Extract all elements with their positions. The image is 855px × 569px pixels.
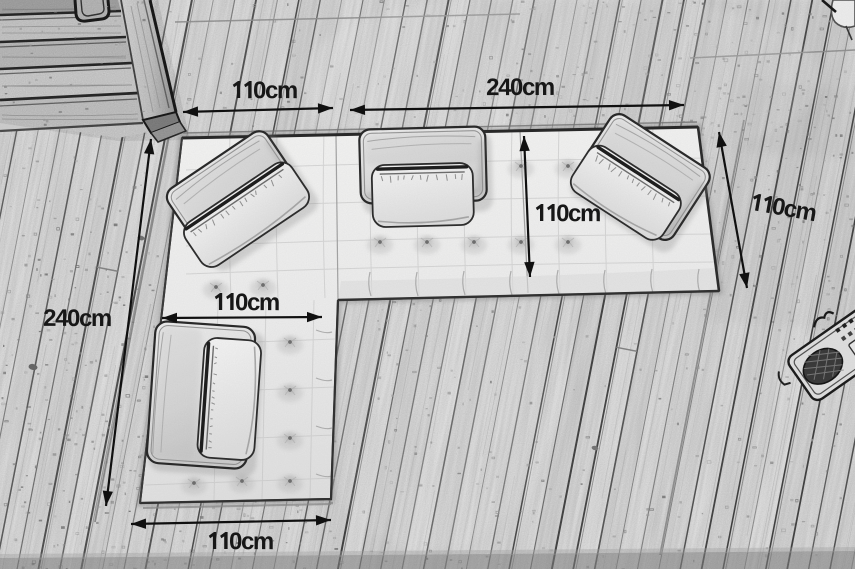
svg-text:0cm: 0cm	[229, 528, 273, 555]
svg-text:240cm: 240cm	[43, 305, 111, 332]
svg-text:240cm: 240cm	[486, 74, 554, 101]
svg-text:0cm: 0cm	[235, 289, 279, 316]
svg-text:0cm: 0cm	[556, 200, 600, 227]
svg-text:0cm: 0cm	[253, 77, 297, 104]
